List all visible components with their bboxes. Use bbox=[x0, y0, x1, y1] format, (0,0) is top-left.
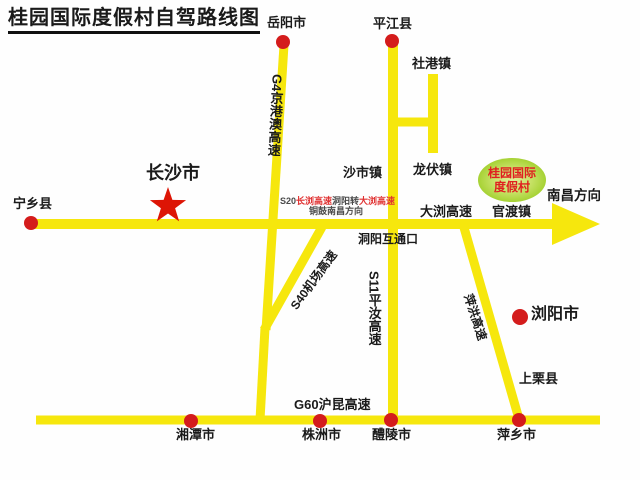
town-label-guandu: 官渡镇 bbox=[492, 205, 531, 219]
city-dot-liuyang bbox=[512, 309, 528, 325]
road-label-g60: G60沪昆高速 bbox=[294, 398, 371, 412]
route-note-dongyangzhuan: 洞阳转 bbox=[332, 196, 359, 206]
east-arrow-head-icon bbox=[552, 203, 600, 245]
town-label-shegang: 社港镇 bbox=[412, 57, 451, 71]
city-dot-liling bbox=[384, 413, 398, 427]
city-label-pingjiang: 平江县 bbox=[373, 17, 412, 31]
resort-badge: 桂园国际 度假村 bbox=[478, 158, 546, 202]
city-label-changsha: 长沙市 bbox=[146, 164, 200, 183]
route-note-line2: 铜鼓南昌方向 bbox=[280, 206, 392, 216]
route-note: S20长浏高速洞阳转大浏高速 铜鼓南昌方向 bbox=[280, 196, 392, 216]
city-dot-pingjiang bbox=[385, 34, 399, 48]
resort-name-line2: 度假村 bbox=[494, 180, 530, 194]
city-dot-ningxiang bbox=[24, 216, 38, 230]
city-label-zhuzhou: 株洲市 bbox=[302, 428, 341, 442]
road-g4-s40-merged bbox=[260, 328, 265, 420]
route-map-canvas: 桂园国际度假村自驾路线图 岳阳市 平江县 宁乡县 长沙市 浏阳市 上栗县 湘潭市… bbox=[0, 0, 640, 480]
city-label-ningxiang: 宁乡县 bbox=[13, 197, 52, 211]
interchange-label: 洞阳互通口 bbox=[358, 233, 418, 246]
page-title: 桂园国际度假村自驾路线图 bbox=[8, 8, 260, 34]
city-dot-xiangtan bbox=[184, 414, 198, 428]
city-label-liuyang: 浏阳市 bbox=[531, 307, 579, 324]
resort-name-line1: 桂园国际 bbox=[488, 166, 536, 180]
city-label-liling: 醴陵市 bbox=[372, 428, 411, 442]
road-label-s11: S11平汝高速 bbox=[367, 271, 381, 345]
route-note-s20: S20 bbox=[280, 196, 296, 206]
changsha-star-icon bbox=[150, 187, 186, 221]
city-dot-yueyang bbox=[276, 35, 290, 49]
city-dot-pingxiang bbox=[512, 413, 526, 427]
direction-label-nanchang: 南昌方向 bbox=[547, 189, 601, 203]
city-label-shangli: 上栗县 bbox=[519, 372, 558, 386]
city-label-yueyang: 岳阳市 bbox=[267, 16, 306, 30]
town-label-shashi: 沙市镇 bbox=[343, 166, 382, 180]
city-label-pingxiang: 萍乡市 bbox=[497, 428, 536, 442]
route-note-changliu: 长浏高速 bbox=[296, 196, 332, 206]
route-note-line1: S20长浏高速洞阳转大浏高速 bbox=[280, 196, 392, 206]
town-label-longfu: 龙伏镇 bbox=[413, 163, 452, 177]
city-label-xiangtan: 湘潭市 bbox=[176, 428, 215, 442]
road-label-g4: G4京港澳高速 bbox=[266, 74, 284, 157]
route-note-daliu: 大浏高速 bbox=[359, 196, 395, 206]
road-label-daliu: 大浏高速 bbox=[420, 205, 472, 219]
city-dot-zhuzhou bbox=[313, 414, 327, 428]
